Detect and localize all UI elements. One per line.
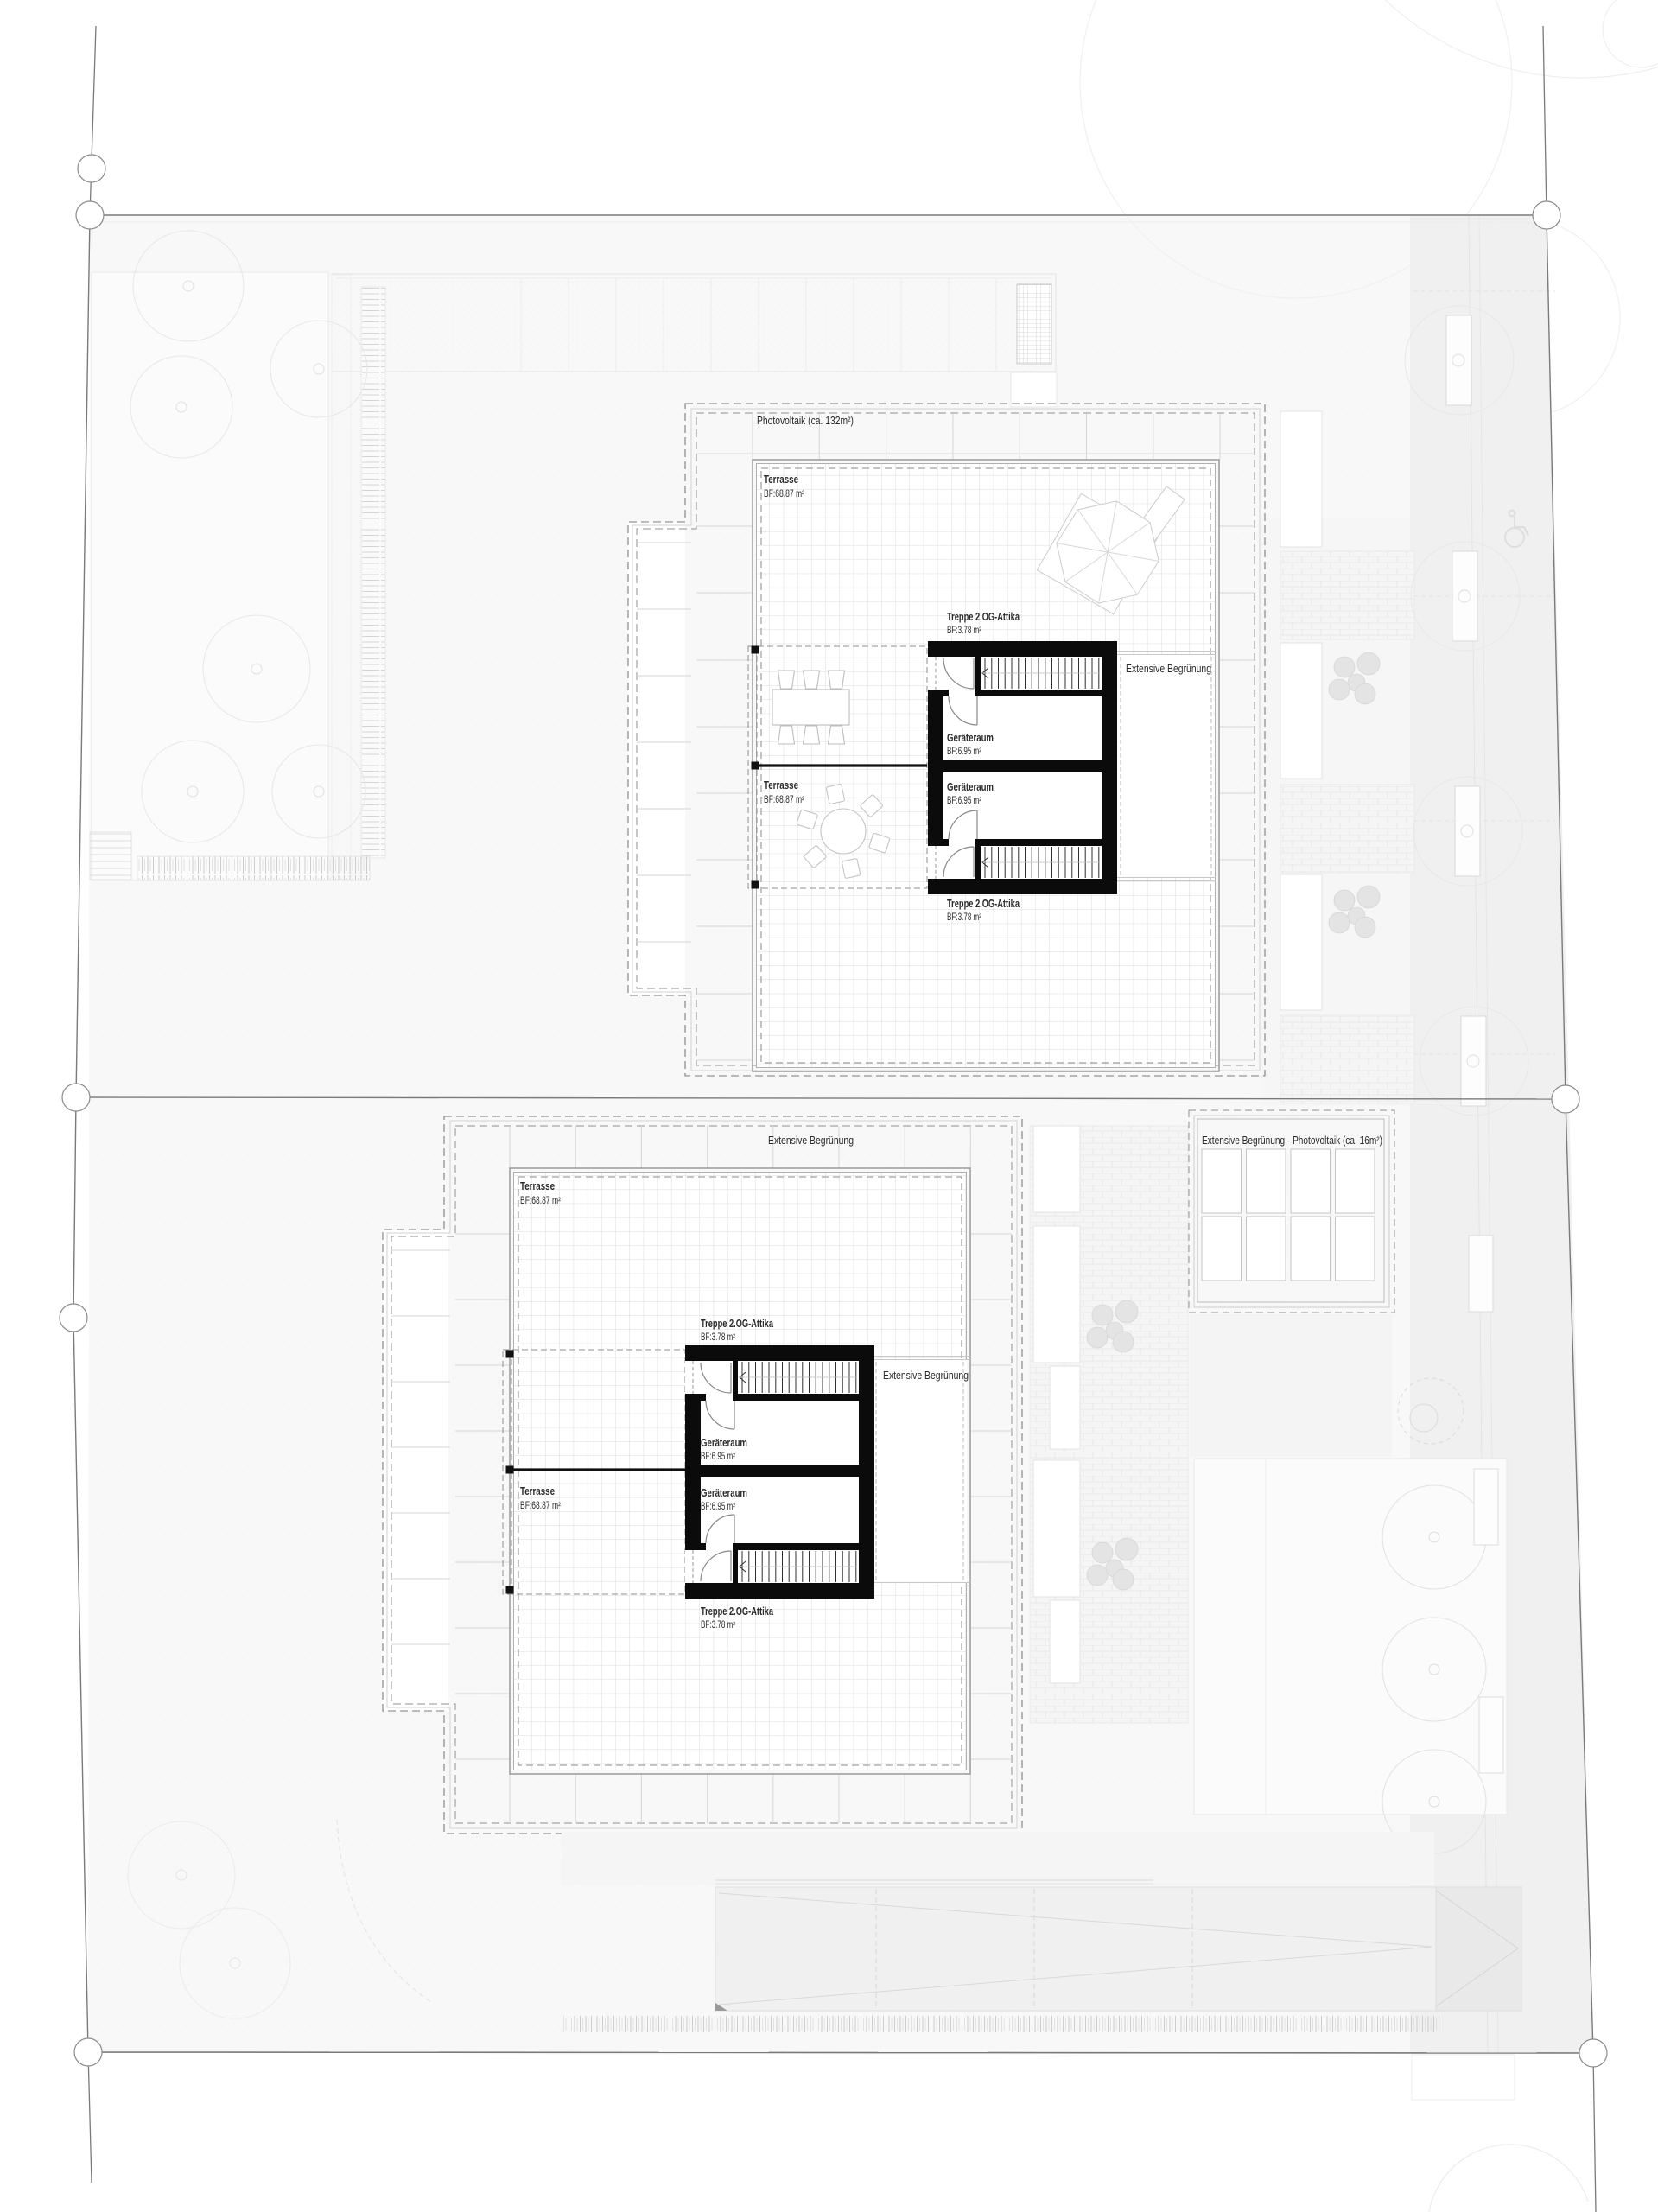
svg-text:BF:3.78 m²: BF:3.78 m² [701,1332,735,1343]
svg-text:BF:6.95 m²: BF:6.95 m² [701,1502,735,1512]
svg-text:Treppe 2.OG-Attika: Treppe 2.OG-Attika [701,1318,774,1330]
svg-text:BF:6.95 m²: BF:6.95 m² [701,1452,735,1462]
svg-text:Extensive Begrünung: Extensive Begrünung [768,1135,854,1147]
svg-text:BF:3.78 m²: BF:3.78 m² [947,912,981,923]
svg-text:Geräteraum: Geräteraum [701,1487,747,1499]
svg-text:Extensive Begrünung - Photovol: Extensive Begrünung - Photovoltaik (ca. … [1202,1135,1382,1147]
svg-text:Geräteraum: Geräteraum [701,1437,747,1449]
svg-text:BF:3.78 m²: BF:3.78 m² [701,1620,735,1630]
svg-text:BF:68.87 m²: BF:68.87 m² [764,795,804,805]
svg-text:BF:6.95 m²: BF:6.95 m² [947,796,981,806]
svg-text:Treppe 2.OG-Attika: Treppe 2.OG-Attika [947,611,1020,623]
svg-text:Extensive Begrünung: Extensive Begrünung [1126,663,1211,675]
svg-text:Terrasse: Terrasse [764,779,798,791]
svg-text:Treppe 2.OG-Attika: Treppe 2.OG-Attika [947,898,1020,910]
svg-text:Terrasse: Terrasse [520,1180,555,1192]
svg-text:BF:68.87 m²: BF:68.87 m² [520,1501,561,1511]
svg-text:Treppe 2.OG-Attika: Treppe 2.OG-Attika [701,1605,774,1618]
svg-text:Geräteraum: Geräteraum [947,732,994,744]
svg-text:BF:68.87 m²: BF:68.87 m² [764,489,804,499]
svg-text:Photovoltaik (ca. 132m²): Photovoltaik (ca. 132m²) [757,415,854,427]
svg-text:Terrasse: Terrasse [520,1485,555,1497]
svg-text:BF:3.78 m²: BF:3.78 m² [947,626,981,636]
svg-text:Geräteraum: Geräteraum [947,781,994,793]
svg-text:Terrasse: Terrasse [764,474,798,486]
svg-text:Extensive Begrünung: Extensive Begrünung [883,1370,969,1382]
svg-text:BF:6.95 m²: BF:6.95 m² [947,747,981,757]
svg-text:BF:68.87 m²: BF:68.87 m² [520,1196,561,1206]
